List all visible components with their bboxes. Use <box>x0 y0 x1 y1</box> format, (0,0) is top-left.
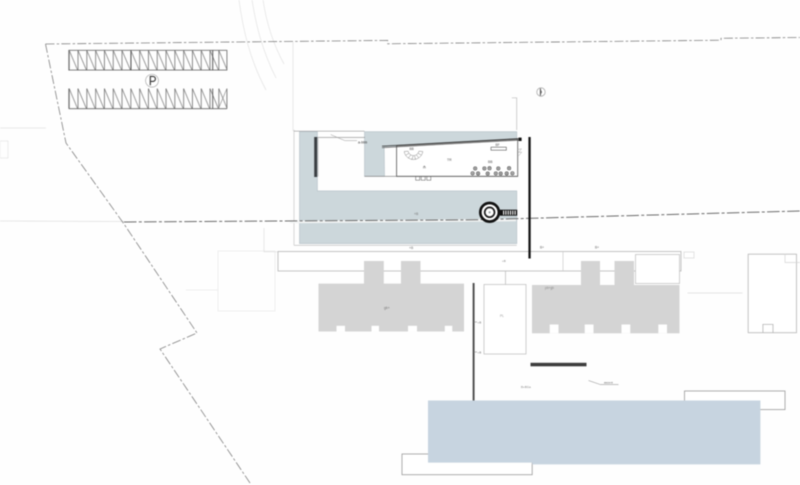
svg-text:+B: +B <box>478 321 482 325</box>
svg-text:BB: BB <box>410 147 414 151</box>
svg-text:a-bbb: a-bbb <box>358 140 367 144</box>
svg-text:B+: B+ <box>540 246 544 250</box>
svg-text:TR: TR <box>447 158 452 162</box>
svg-text:pb+gb: pb+gb <box>545 286 554 290</box>
svg-text:B+BGa: B+BGa <box>521 385 531 389</box>
svg-text:gb+: gb+ <box>384 306 390 310</box>
svg-text:+B: +B <box>502 259 506 263</box>
svg-text:BF: BF <box>496 143 500 147</box>
svg-text:+B: +B <box>478 351 482 355</box>
svg-text:B+: B+ <box>595 246 599 250</box>
svg-text:ascent: ascent <box>604 381 613 385</box>
svg-text:+B: +B <box>414 212 419 216</box>
svg-text:BB: BB <box>488 160 493 164</box>
svg-text:PL: PL <box>500 314 504 318</box>
svg-text:+B: +B <box>409 246 414 250</box>
